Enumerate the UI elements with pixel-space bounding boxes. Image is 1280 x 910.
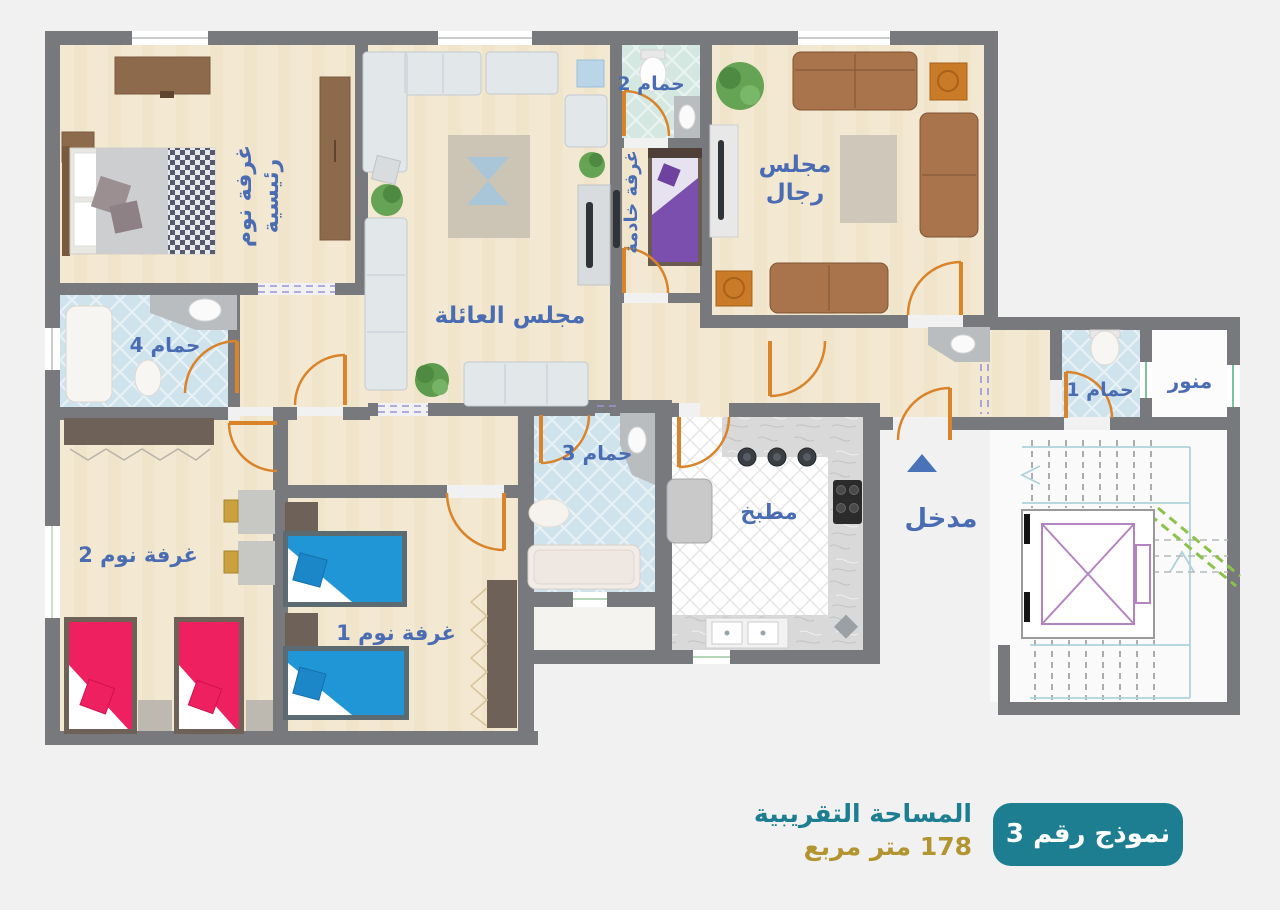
chair — [224, 551, 238, 573]
toilet — [1091, 331, 1119, 365]
window-bath3 — [573, 592, 607, 607]
desk — [238, 541, 275, 585]
area-title: المساحة التقريبية — [700, 800, 972, 829]
window-top-mens — [798, 31, 890, 45]
single-bed-blue — [283, 531, 407, 607]
entrance-label: مدخل — [904, 504, 977, 534]
light-well-label: منور — [1167, 369, 1213, 393]
plant — [579, 152, 605, 178]
nightstand — [246, 700, 273, 731]
sink — [679, 105, 695, 129]
tv-unit — [578, 185, 610, 285]
single-bed-pink — [64, 617, 137, 734]
sofa-bottom — [464, 362, 588, 406]
vestibule-floor — [984, 330, 1050, 417]
stove — [833, 480, 862, 524]
window-lightwell-left — [1140, 362, 1152, 398]
laptop-table — [371, 155, 400, 184]
hall-floor — [240, 295, 368, 407]
entrance-arrow-icon — [907, 454, 937, 472]
tv — [613, 190, 620, 248]
double-sink — [706, 618, 788, 648]
bathroom-1-fixtures — [1090, 330, 1120, 365]
plant — [371, 184, 403, 216]
area-value: 178 متر مربع — [700, 832, 972, 862]
side-table-orange — [930, 63, 967, 100]
bathroom-2-label: حمام 2 — [617, 73, 684, 95]
mens-majlis-label: مجلس — [759, 152, 832, 178]
single-bed-purple — [648, 148, 702, 266]
wardrobe — [487, 580, 517, 728]
desk — [238, 490, 275, 534]
floorplan-drawing: غرفة نوم رئيسية مجلس العائلة مجلس رجال غ… — [0, 0, 1280, 910]
service-floor — [534, 607, 655, 650]
chair — [224, 500, 238, 522]
single-bed-pink — [174, 617, 244, 734]
area-info: المساحة التقريبية 178 متر مربع — [700, 800, 972, 862]
bathtub — [66, 306, 112, 402]
window-top-master — [132, 31, 208, 45]
kitchen-label: مطبخ — [740, 500, 797, 524]
family-majlis-label: مجلس العائلة — [435, 303, 586, 329]
toilet — [529, 499, 569, 527]
side-table — [577, 60, 604, 87]
armchair — [565, 95, 607, 147]
window-kitchen — [693, 650, 730, 664]
master-bedroom-label: غرفة نوم — [232, 145, 257, 247]
window-left-bath4 — [45, 328, 60, 370]
tv-unit — [710, 125, 738, 237]
bedroom-1-label: غرفة نوم 1 — [336, 621, 456, 645]
desk-chair — [160, 91, 174, 98]
window-top-majlis — [438, 31, 532, 45]
side-table-orange — [716, 271, 752, 306]
sink — [951, 335, 975, 353]
sink — [189, 299, 221, 321]
plant — [716, 62, 764, 110]
closet — [64, 418, 214, 445]
sofa-top-right — [486, 52, 558, 94]
bathroom-3-label: حمام 3 — [562, 441, 633, 465]
desk — [115, 57, 210, 94]
master-bedroom-label-2: رئيسية — [259, 159, 284, 234]
plant — [415, 363, 449, 397]
nightstand — [285, 502, 318, 535]
model-badge: نموذج رقم 3 — [993, 803, 1183, 866]
single-bed-blue — [283, 646, 409, 720]
sofa-left — [365, 218, 407, 390]
fridge — [667, 479, 712, 543]
bathroom-4-label: حمام 4 — [130, 333, 201, 357]
bar-stools — [738, 448, 816, 466]
toilet — [135, 360, 161, 396]
bedroom-2-label: غرفة نوم 2 — [78, 543, 198, 567]
maid-room-label: غرفة خادمة — [621, 150, 642, 254]
double-bed — [62, 146, 215, 256]
model-badge-label: نموذج رقم 3 — [1006, 819, 1170, 849]
mens-majlis-label-2: رجال — [766, 180, 824, 206]
floorplan-canvas: غرفة نوم رئيسية مجلس العائلة مجلس رجال غ… — [0, 0, 1280, 910]
elevator — [1022, 510, 1154, 638]
window-left-bedroom2 — [45, 526, 60, 618]
nightstand — [138, 700, 172, 731]
window-lightwell-right — [1227, 365, 1240, 407]
elevator-door-mark — [1024, 514, 1030, 544]
corridor-floor-mid — [612, 303, 700, 403]
nightstand — [285, 613, 318, 647]
elevator-door-mark — [1024, 592, 1030, 622]
rug — [840, 135, 897, 223]
bathroom-1-label: حمام 1 — [1066, 379, 1133, 401]
